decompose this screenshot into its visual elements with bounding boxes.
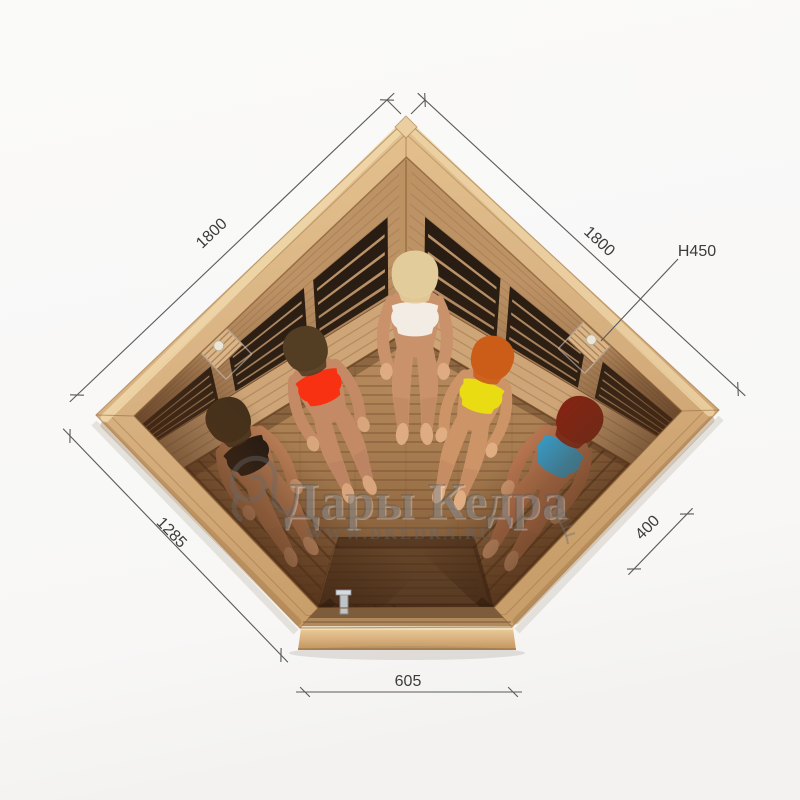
svg-text:Дары Кедра: Дары Кедра xyxy=(283,473,567,530)
svg-text:605: 605 xyxy=(395,673,422,690)
svg-text:H450: H450 xyxy=(678,243,716,260)
svg-text:WWW.DKEDRA.RU: WWW.DKEDRA.RU xyxy=(306,524,495,543)
